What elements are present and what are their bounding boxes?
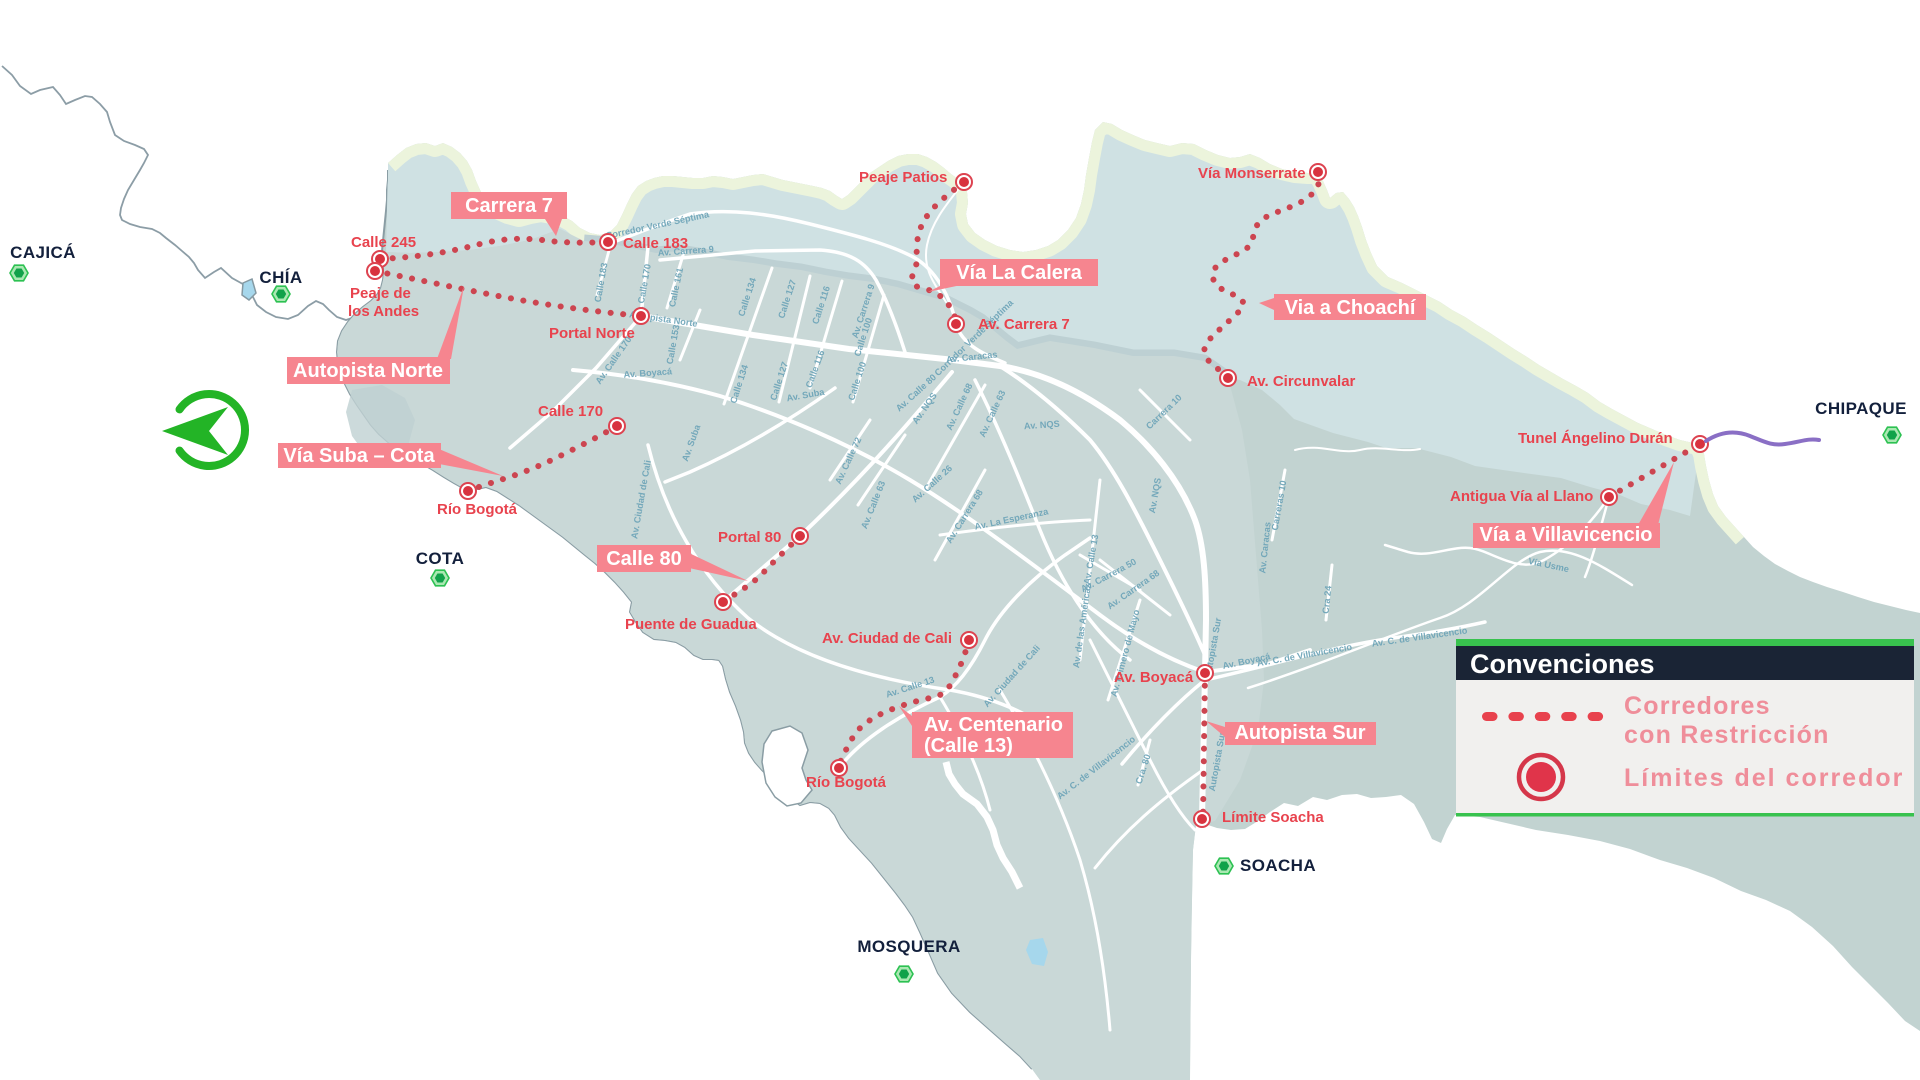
svg-text:CHÍA: CHÍA (259, 268, 302, 287)
svg-text:Tunel Ángelino Durán: Tunel Ángelino Durán (1518, 430, 1673, 447)
svg-text:CAJICÁ: CAJICÁ (10, 243, 76, 262)
svg-text:Portal Norte: Portal Norte (549, 325, 635, 342)
svg-text:Av. Carrera 7: Av. Carrera 7 (978, 316, 1070, 333)
svg-text:SOACHA: SOACHA (1240, 856, 1316, 875)
svg-text:Calle 245: Calle 245 (351, 234, 416, 251)
svg-text:Av. Boyacá: Av. Boyacá (1114, 669, 1194, 686)
svg-text:Vía Suba – Cota: Vía Suba – Cota (283, 445, 435, 467)
svg-text:Límites del corredor: Límites del corredor (1624, 764, 1904, 792)
svg-text:Calle 170: Calle 170 (538, 403, 603, 420)
svg-text:Vía La Calera: Vía La Calera (956, 262, 1083, 284)
svg-text:MOSQUERA: MOSQUERA (857, 937, 960, 956)
svg-text:Av. Ciudad de Cali: Av. Ciudad de Cali (822, 630, 952, 647)
svg-text:Río Bogotá: Río Bogotá (437, 501, 518, 518)
svg-text:(Calle 13): (Calle 13) (924, 735, 1013, 757)
svg-text:Autopista Sur: Autopista Sur (1234, 722, 1365, 744)
svg-text:COTA: COTA (416, 549, 465, 568)
svg-text:Peaje de: Peaje de (350, 285, 411, 302)
svg-text:con Restricción: con Restricción (1624, 721, 1830, 749)
svg-text:Portal 80: Portal 80 (718, 529, 781, 546)
svg-text:Autopista Norte: Autopista Norte (293, 360, 443, 382)
svg-text:Límite Soacha: Límite Soacha (1222, 809, 1324, 826)
svg-text:Corredores: Corredores (1624, 692, 1771, 720)
svg-text:Via a Choachí: Via a Choachí (1285, 297, 1417, 319)
svg-text:Convenciones: Convenciones (1470, 649, 1655, 679)
svg-text:Av. Centenario: Av. Centenario (924, 714, 1063, 736)
svg-text:los Andes: los Andes (348, 303, 419, 320)
svg-text:Puente de Guadua: Puente de Guadua (625, 616, 757, 633)
svg-text:Antigua Vía al Llano: Antigua Vía al Llano (1450, 488, 1593, 505)
svg-text:Carrera 7: Carrera 7 (465, 195, 553, 217)
svg-text:CHIPAQUE: CHIPAQUE (1815, 399, 1907, 418)
svg-text:Río Bogotá: Río Bogotá (806, 774, 887, 791)
svg-text:Calle 183: Calle 183 (623, 235, 688, 252)
svg-text:Peaje Patios: Peaje Patios (859, 169, 947, 186)
svg-text:Vía Monserrate: Vía Monserrate (1198, 165, 1306, 182)
svg-text:Av. Circunvalar: Av. Circunvalar (1247, 373, 1356, 390)
svg-text:Calle 80: Calle 80 (606, 548, 682, 570)
svg-text:Vía a Villavicencio: Vía a Villavicencio (1479, 524, 1652, 546)
